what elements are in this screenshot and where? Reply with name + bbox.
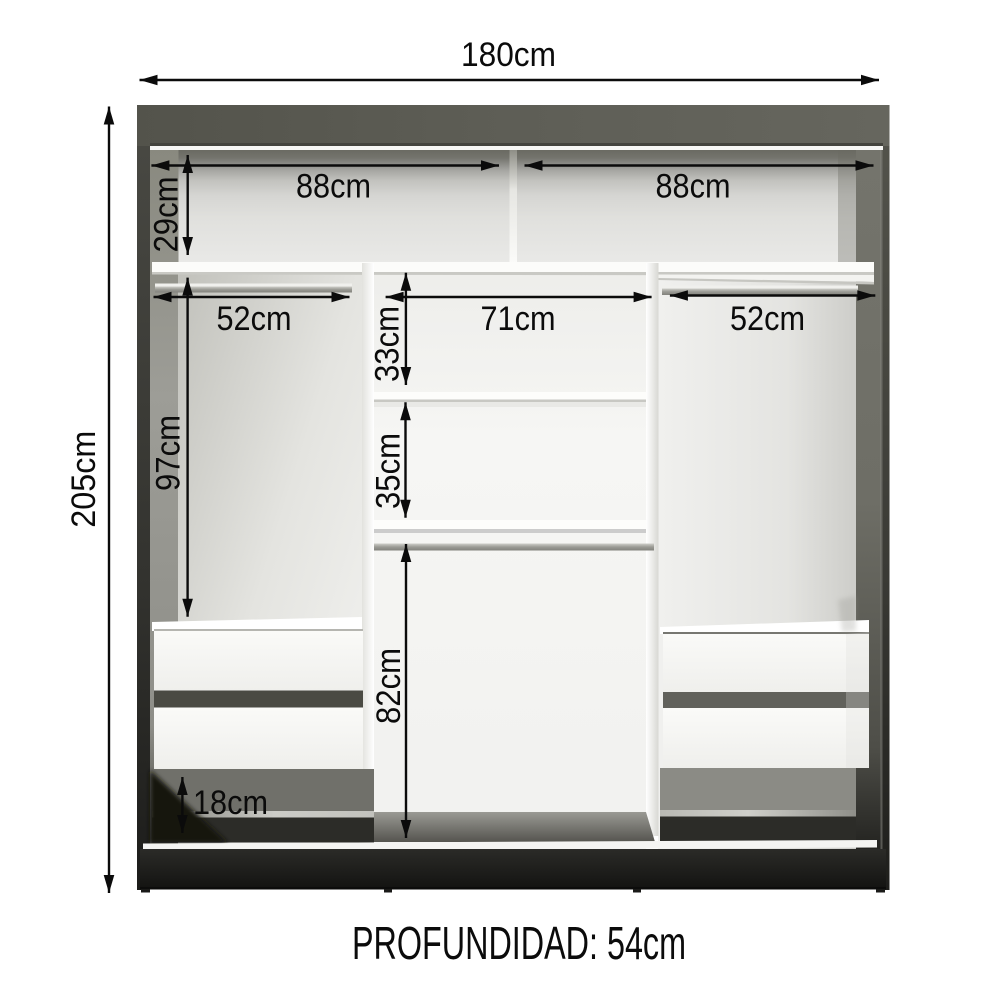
svg-text:33cm: 33cm xyxy=(369,306,407,382)
svg-text:180cm: 180cm xyxy=(461,36,556,74)
svg-text:88cm: 88cm xyxy=(656,168,731,206)
svg-text:52cm: 52cm xyxy=(217,300,292,338)
svg-text:205cm: 205cm xyxy=(65,431,103,528)
svg-text:29cm: 29cm xyxy=(148,177,186,253)
svg-text:88cm: 88cm xyxy=(296,168,371,206)
svg-text:18cm: 18cm xyxy=(193,784,268,822)
svg-text:71cm: 71cm xyxy=(481,300,556,338)
svg-text:35cm: 35cm xyxy=(370,433,408,509)
svg-text:97cm: 97cm xyxy=(149,415,187,491)
svg-text:52cm: 52cm xyxy=(730,300,805,338)
svg-text:82cm: 82cm xyxy=(370,648,408,724)
svg-text:PROFUNDIDAD: 54cm: PROFUNDIDAD: 54cm xyxy=(352,917,686,969)
